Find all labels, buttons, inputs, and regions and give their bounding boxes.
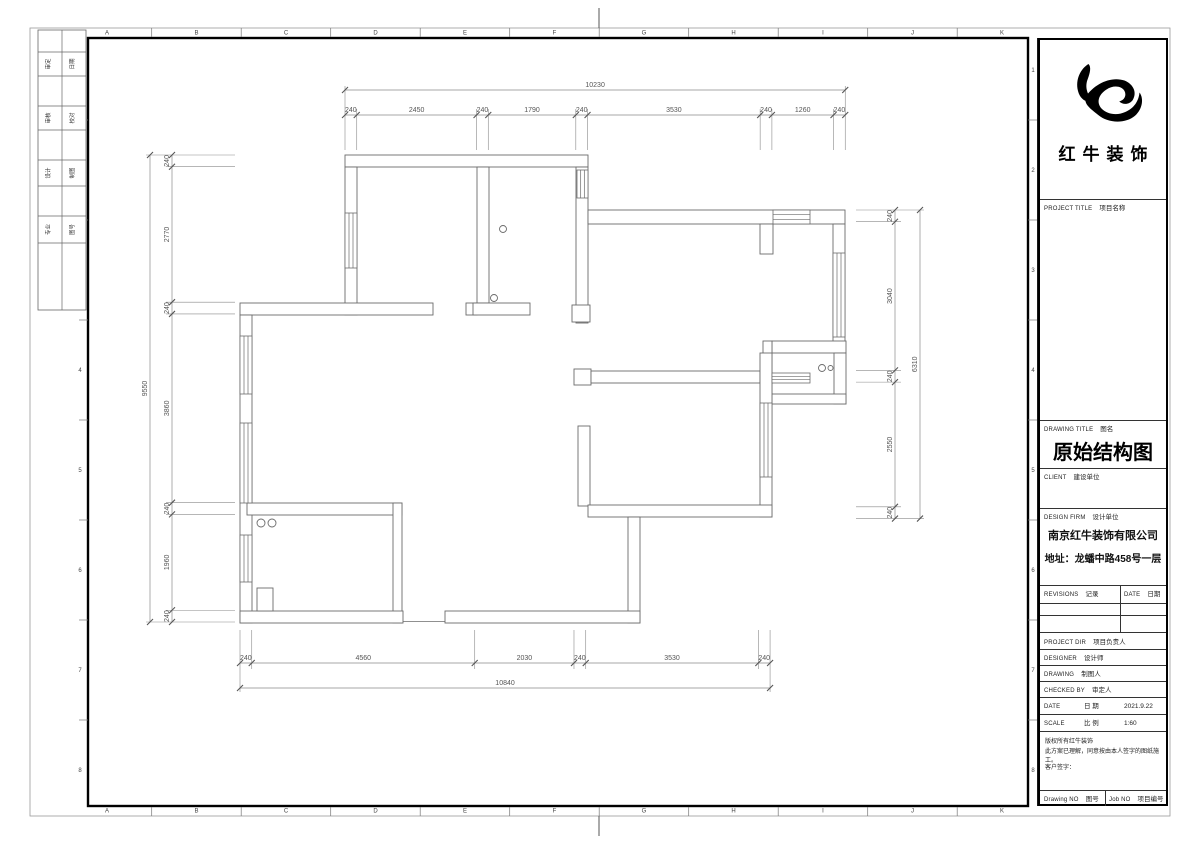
svg-text:校对: 校对 [68,112,76,124]
svg-text:F: F [553,31,557,37]
svg-text:240: 240 [576,107,588,114]
svg-text:7: 7 [1031,668,1035,674]
svg-text:240: 240 [164,155,171,167]
job-no-row: Job NO 项目编号 [1109,793,1164,803]
svg-text:7: 7 [78,668,82,674]
svg-text:K: K [1000,809,1004,815]
svg-text:3040: 3040 [887,288,894,304]
job-no-en: Job NO [1109,797,1131,803]
drawing-no-row: Drawing NO 图号 [1044,793,1102,803]
checked-by-en: CHECKED BY [1044,688,1085,694]
design-firm-cn: 设计单位 [1093,511,1119,521]
svg-text:3530: 3530 [666,107,682,114]
svg-text:240: 240 [164,503,171,515]
signoff-strip: 审定日期审核校对设计制图专业图号 [38,30,86,310]
date-header: DATE 日期 [1124,588,1164,598]
svg-text:B: B [194,31,198,37]
date-value: 2021.9.22 [1124,703,1153,710]
scale-cn: 比 例 [1084,717,1116,727]
svg-text:K: K [1000,31,1004,37]
svg-text:审核: 审核 [44,112,52,124]
designer-cn: 设计师 [1084,652,1104,662]
svg-text:240: 240 [240,655,252,662]
date-header-en: DATE [1124,592,1140,598]
dimension-bottom: 24045602030240353024010840 [237,630,773,692]
floor-plan: AABBCCDDEEFFGGHHIIJJKK1122334455667788审定… [0,0,1200,844]
svg-text:I: I [822,809,824,815]
svg-text:H: H [731,809,735,815]
design-firm-company: 南京红牛装饰有限公司 [1040,527,1166,543]
project-dir-en: PROJECT DIR [1044,640,1086,646]
drawing-no-en: Drawing NO [1044,797,1079,803]
walls [240,155,846,623]
cad-drawing-sheet: AABBCCDDEEFFGGHHIIJJKK1122334455667788审定… [0,0,1200,844]
title-block: 红牛装饰 PROJECT TITLE 项目名称 DRAWING TITLE 图名… [1038,38,1168,806]
scale-en: SCALE [1044,721,1084,727]
revisions-en: REVISIONS [1044,592,1078,598]
project-dir-row: PROJECT DIR 项目负责人 [1044,636,1164,646]
svg-text:1: 1 [1031,68,1035,74]
copyright-line1: 版权所有红牛装饰 [1045,738,1163,747]
scale-value: 1:60 [1124,720,1137,727]
client-row: CLIENT 建设单位 [1044,471,1164,481]
customer-sign-label: 客户签字： [1045,764,1163,773]
svg-text:10230: 10230 [585,82,605,89]
svg-text:6: 6 [1031,568,1035,574]
designer-en: DESIGNER [1044,656,1077,662]
scale-row: SCALE 比 例 1:60 [1044,717,1164,727]
svg-text:设计: 设计 [44,167,52,179]
redbull-logo-icon [1060,58,1150,136]
date-cn: 日 期 [1084,700,1116,710]
project-dir-cn: 项目负责人 [1093,636,1126,646]
svg-text:C: C [284,31,289,37]
svg-text:图号: 图号 [68,224,76,236]
svg-text:6: 6 [78,568,82,574]
svg-text:1260: 1260 [795,107,811,114]
revisions-header: REVISIONS 记录 [1044,588,1118,598]
svg-text:240: 240 [887,370,894,382]
svg-text:C: C [284,809,289,815]
svg-text:A: A [105,31,109,37]
client-en: CLIENT [1044,475,1067,481]
svg-text:J: J [911,31,914,37]
designer-row: DESIGNER 设计师 [1044,652,1164,662]
design-firm-en: DESIGN FIRM [1044,515,1086,521]
svg-text:G: G [642,31,647,37]
date-en: DATE [1044,704,1084,710]
svg-text:审定: 审定 [44,58,52,70]
grid-number-band: 1122334455667788 [78,68,1037,774]
drawing-title-value: 原始结构图 [1040,436,1166,465]
svg-text:9550: 9550 [142,381,149,397]
svg-text:5: 5 [1031,468,1035,474]
svg-text:J: J [911,809,914,815]
svg-text:G: G [642,809,647,815]
svg-text:10840: 10840 [495,680,515,687]
drawing-title-row: DRAWING TITLE 图名 [1044,423,1164,433]
svg-text:F: F [553,809,557,815]
svg-text:I: I [822,31,824,37]
svg-text:H: H [731,31,735,37]
svg-text:D: D [373,809,378,815]
checked-by-row: CHECKED BY 审定人 [1044,684,1164,694]
svg-text:240: 240 [164,610,171,622]
svg-text:2: 2 [1031,168,1035,174]
checked-by-cn: 审定人 [1092,684,1112,694]
svg-text:2550: 2550 [887,437,894,453]
svg-text:E: E [463,809,467,815]
svg-text:D: D [373,31,378,37]
dimension-right: 240304024025502406310 [856,207,924,522]
svg-text:3860: 3860 [164,400,171,416]
drawing-title-cn: 图名 [1100,423,1113,433]
fixture-circles [257,226,833,622]
svg-text:2030: 2030 [517,655,533,662]
svg-text:E: E [463,31,467,37]
svg-text:240: 240 [760,107,772,114]
svg-text:4: 4 [1031,368,1035,374]
svg-text:A: A [105,809,109,815]
svg-text:8: 8 [78,768,82,774]
svg-text:2450: 2450 [409,107,425,114]
svg-text:制图: 制图 [68,167,76,179]
revisions-cn: 记录 [1085,588,1098,598]
svg-text:6310: 6310 [912,356,919,372]
svg-text:1790: 1790 [524,107,540,114]
svg-text:240: 240 [164,302,171,314]
project-title-en: PROJECT TITLE [1044,206,1092,212]
svg-text:5: 5 [78,468,82,474]
svg-text:240: 240 [574,655,586,662]
client-cn: 建设单位 [1074,471,1100,481]
svg-text:专业: 专业 [44,224,52,236]
project-title-row: PROJECT TITLE 项目名称 [1044,202,1164,212]
brand-name: 红牛装饰 [1040,140,1166,165]
svg-text:1960: 1960 [164,554,171,570]
svg-text:4: 4 [78,368,82,374]
date-header-cn: 日期 [1147,588,1160,598]
drawing-by-row: DRAWING 制图人 [1044,668,1164,678]
svg-text:240: 240 [834,107,846,114]
drawing-no-cn: 图号 [1086,793,1099,803]
dimension-top: 240245024017902403530240126024010230 [342,82,848,150]
date-row: DATE 日 期 2021.9.22 [1044,700,1164,710]
svg-text:240: 240 [345,107,357,114]
drawing-title-en: DRAWING TITLE [1044,427,1093,433]
design-firm-row: DESIGN FIRM 设计单位 [1044,511,1164,521]
drawing-by-cn: 制图人 [1081,668,1101,678]
svg-text:8: 8 [1031,768,1035,774]
project-title-cn: 项目名称 [1099,202,1125,212]
svg-text:3530: 3530 [664,655,680,662]
svg-text:240: 240 [887,210,894,222]
sheet-frame [30,8,1170,836]
svg-text:240: 240 [758,655,770,662]
svg-text:240: 240 [887,507,894,519]
svg-text:日期: 日期 [69,58,76,70]
design-firm-address: 地址：龙蟠中路458号一层 [1040,550,1166,565]
dimension-left: 2402770240386024019602409550 [142,152,235,625]
svg-text:240: 240 [477,107,489,114]
svg-text:2770: 2770 [164,227,171,243]
drawing-by-en: DRAWING [1044,672,1074,678]
svg-text:3: 3 [1031,268,1035,274]
svg-text:4560: 4560 [355,655,371,662]
job-no-cn: 项目编号 [1138,793,1164,803]
svg-text:B: B [194,809,198,815]
